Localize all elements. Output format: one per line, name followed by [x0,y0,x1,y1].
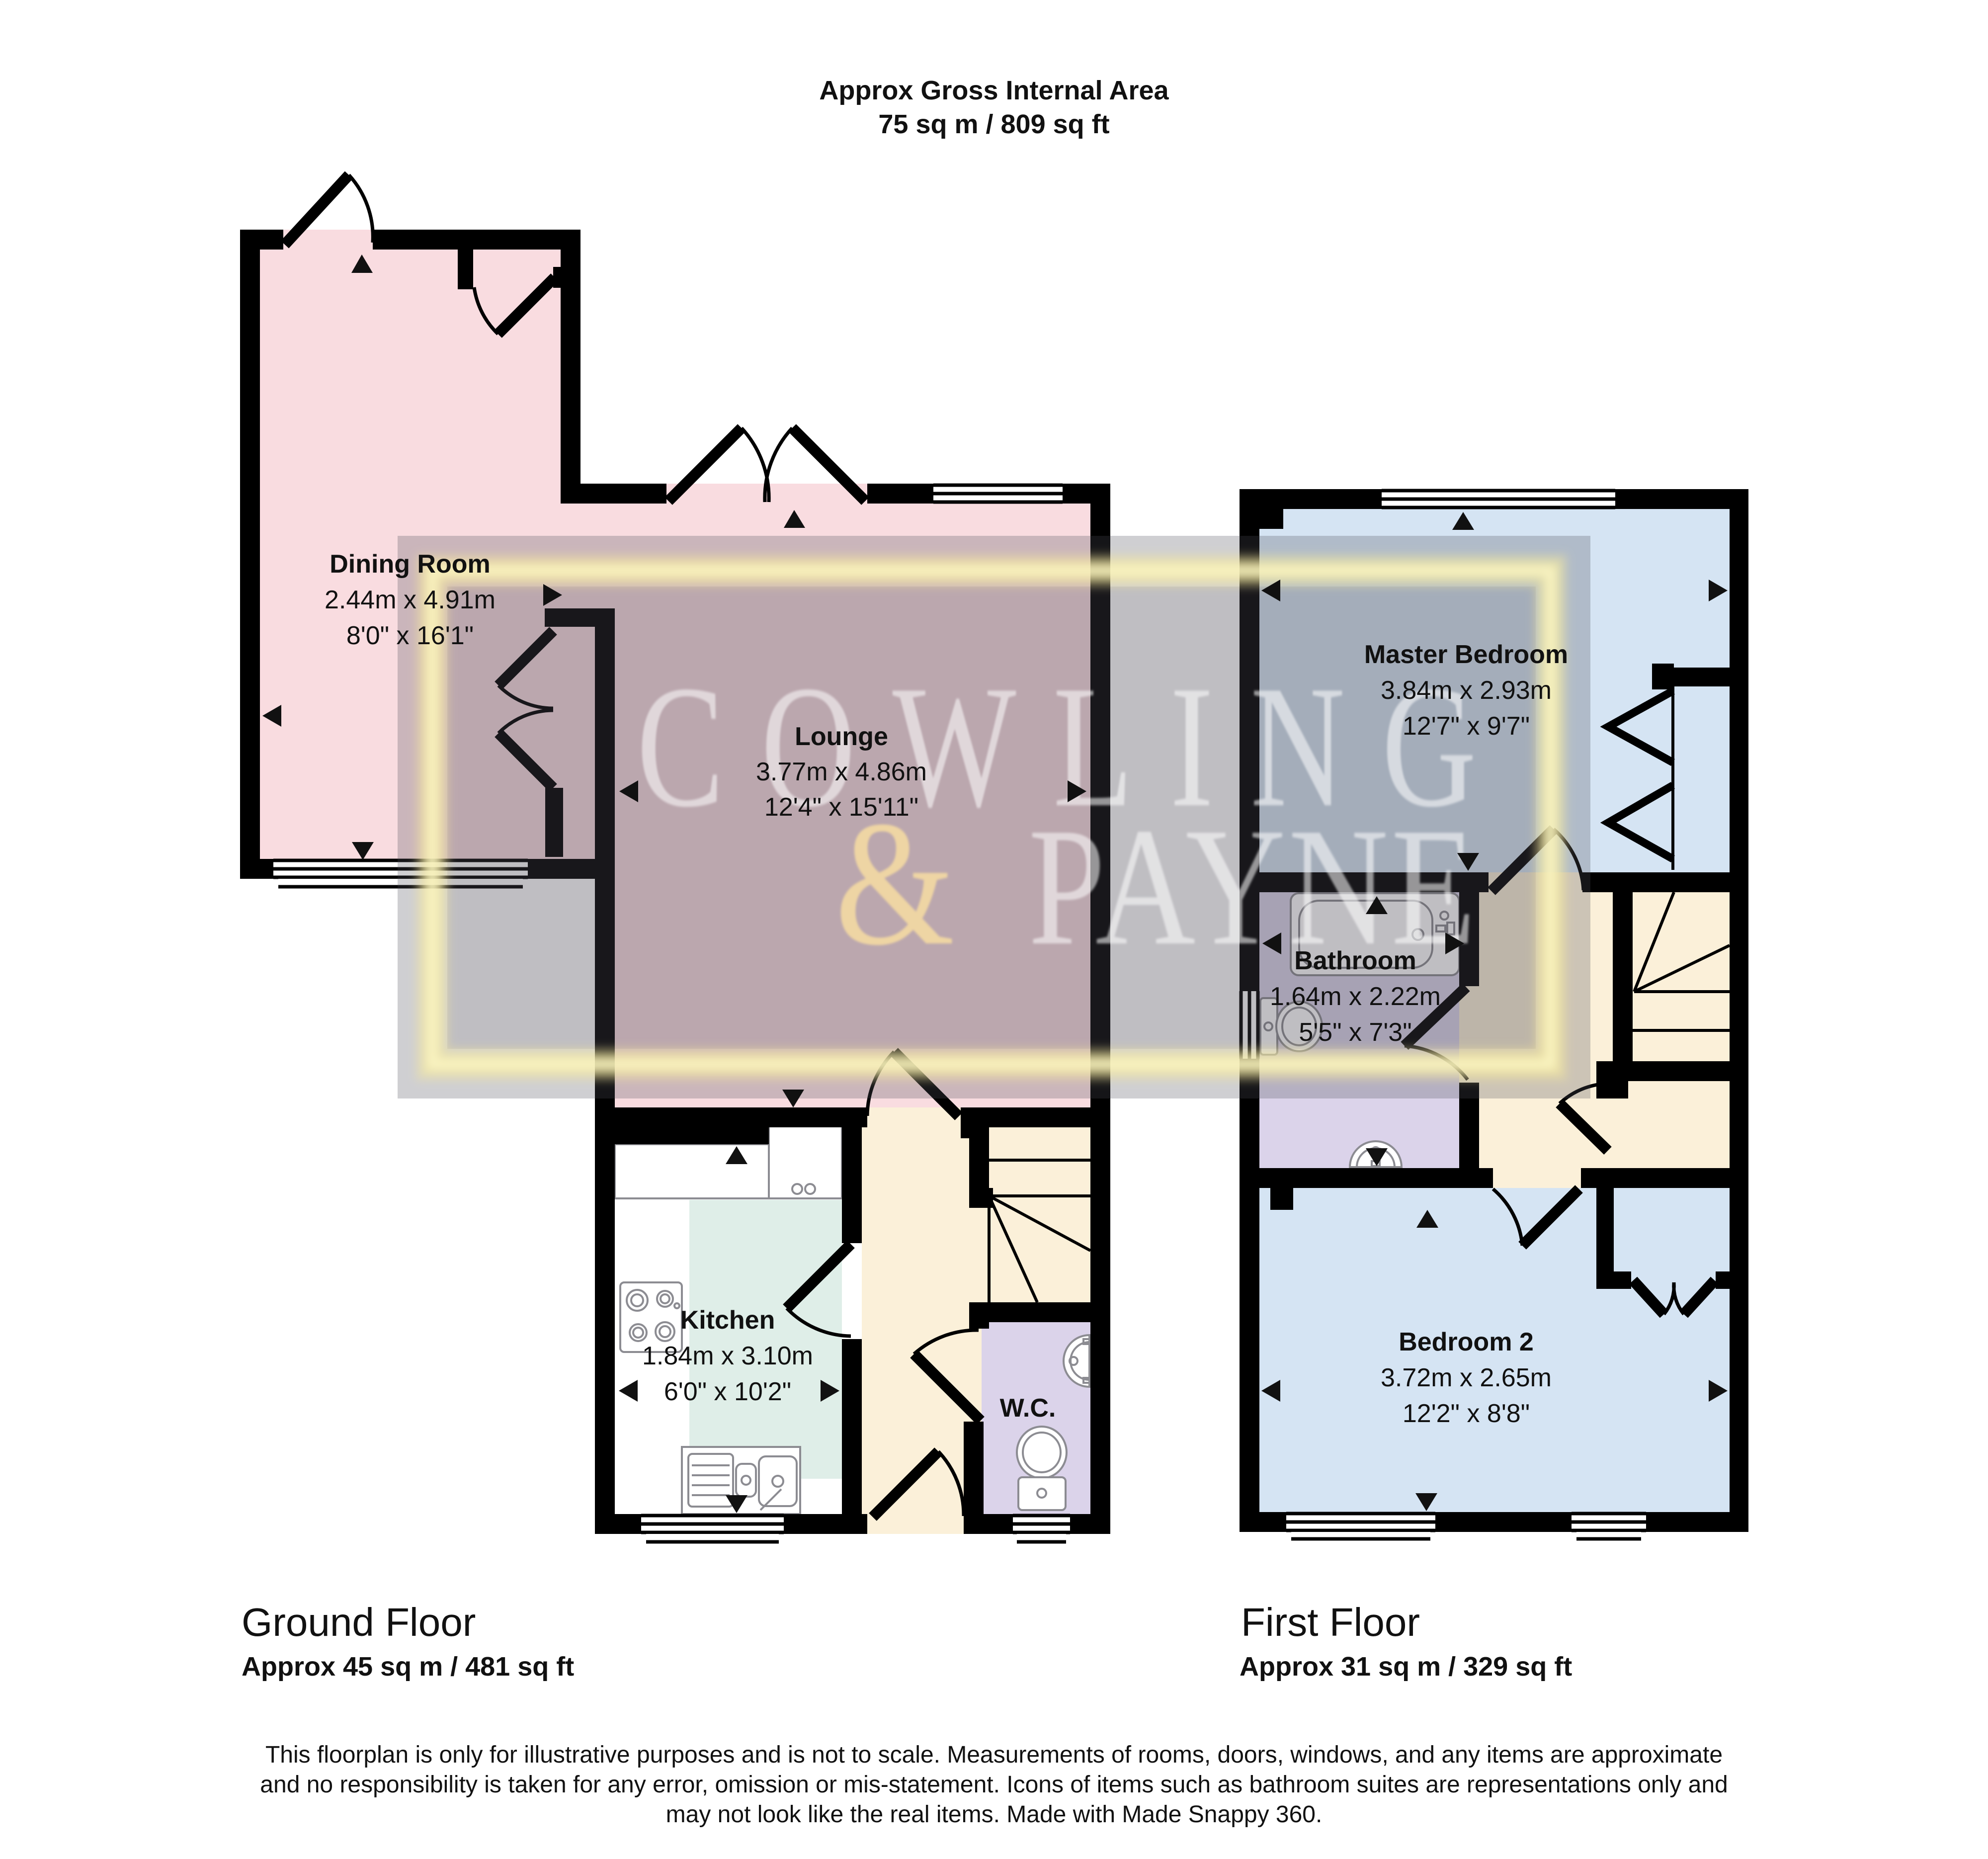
svg-text:Dining Room: Dining Room [330,550,491,579]
svg-text:3.77m x 4.86m: 3.77m x 4.86m [756,758,927,786]
svg-text:Approx 31 sq m / 329 sq ft: Approx 31 sq m / 329 sq ft [1240,1652,1572,1682]
svg-text:3.84m x 2.93m: 3.84m x 2.93m [1381,676,1552,705]
svg-text:1.84m x 3.10m: 1.84m x 3.10m [642,1342,813,1370]
svg-text:may not look like the real ite: may not look like the real items. Made w… [666,1801,1323,1828]
svg-text:3.72m x 2.65m: 3.72m x 2.65m [1381,1363,1552,1392]
svg-text:Approx 45 sq m / 481 sq ft: Approx 45 sq m / 481 sq ft [242,1652,574,1682]
svg-text:Kitchen: Kitchen [680,1306,775,1335]
svg-text:Bathroom: Bathroom [1294,946,1416,975]
svg-text:Lounge: Lounge [795,722,888,751]
svg-text:12'7" x 9'7": 12'7" x 9'7" [1403,712,1530,741]
svg-text:and no responsibility is taken: and no responsibility is taken for any e… [260,1772,1728,1798]
svg-text:1.64m x 2.22m: 1.64m x 2.22m [1270,982,1441,1011]
svg-text:This floorplan is only for ill: This floorplan is only for illustrative … [265,1742,1723,1768]
svg-text:W.C.: W.C. [1000,1394,1056,1423]
svg-text:2.44m x 4.91m: 2.44m x 4.91m [325,586,496,614]
svg-text:12'4" x 15'11": 12'4" x 15'11" [764,793,918,822]
svg-text:75 sq m / 809 sq ft: 75 sq m / 809 sq ft [878,109,1109,139]
svg-text:Master Bedroom: Master Bedroom [1364,640,1568,669]
svg-text:8'0" x 16'1": 8'0" x 16'1" [346,621,474,650]
svg-text:Approx Gross Internal Area: Approx Gross Internal Area [819,76,1169,105]
svg-text:6'0" x 10'2": 6'0" x 10'2" [664,1377,791,1406]
svg-text:12'2" x 8'8": 12'2" x 8'8" [1403,1399,1530,1428]
svg-text:Ground Floor: Ground Floor [242,1600,476,1644]
svg-text:Bedroom 2: Bedroom 2 [1399,1328,1534,1356]
svg-text:First Floor: First Floor [1241,1600,1420,1644]
svg-text:5'5" x 7'3": 5'5" x 7'3" [1299,1018,1411,1047]
